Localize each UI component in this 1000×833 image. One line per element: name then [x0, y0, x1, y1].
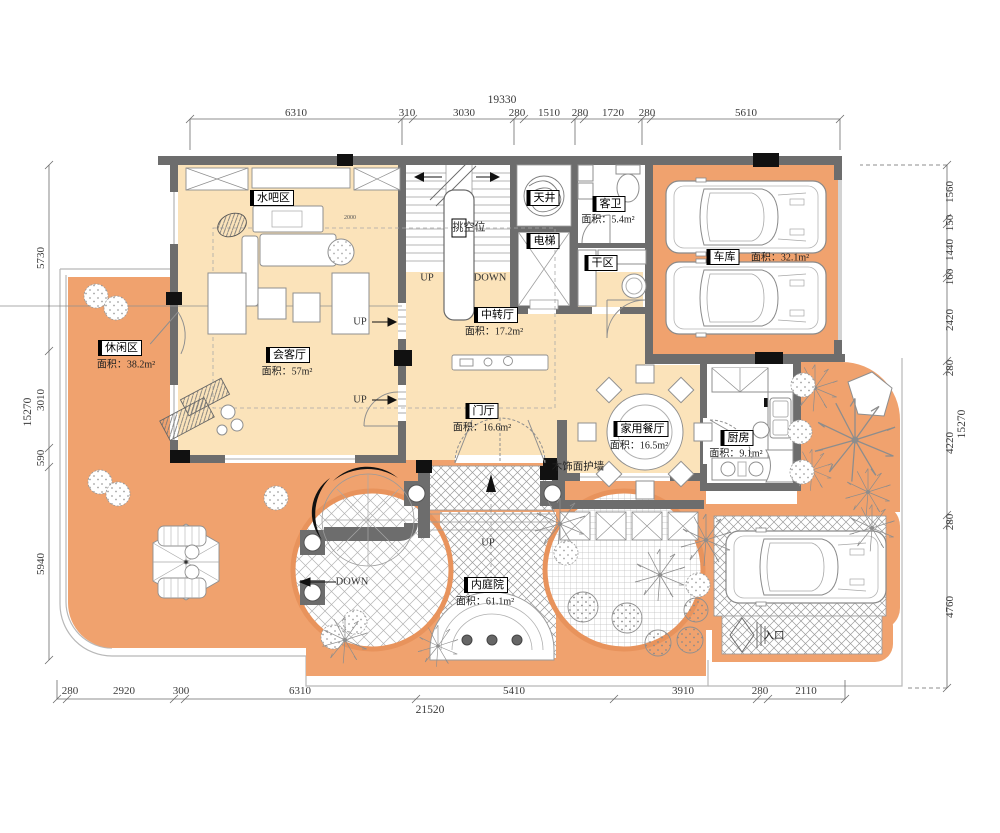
room-label-dry-area: 干区: [585, 253, 618, 271]
room-label-courtyard: 内庭院: [464, 575, 508, 593]
step-up-label-1: UP: [353, 317, 366, 328]
room-label-leisure: 休闲区: [98, 338, 142, 356]
room-label-elevator: 电梯: [527, 231, 560, 249]
room-label-dining: 家用餐厅: [614, 419, 669, 437]
stair-up-label: UP: [420, 273, 433, 284]
floor-plan: 19330 6310 310 3030 280 1510 280 1720 28…: [0, 0, 1000, 833]
kitchen-fixtures: [712, 368, 793, 482]
dim-total-left: 15270: [22, 398, 34, 427]
stair-down-label: DOWN: [474, 273, 507, 284]
room-label-void: 挑空位: [452, 219, 467, 238]
dim-total-right: 15270: [956, 410, 968, 439]
step-up-label-2: UP: [353, 395, 366, 406]
dim-total-bottom: 21520: [416, 704, 445, 716]
bar-dim-label: 2000: [344, 215, 356, 221]
room-label-transfer-hall: 中转厅: [474, 305, 518, 323]
dim-total-top: 19330: [488, 94, 517, 106]
porch-up-label: UP: [481, 538, 494, 549]
room-label-water-bar: 水吧区: [250, 188, 294, 206]
floor-plan-drawing: [0, 0, 1000, 833]
room-label-foyer: 门厅: [466, 401, 499, 419]
room-label-guest-bath: 客卫: [593, 194, 626, 212]
entry-corridor: [722, 616, 882, 654]
room-label-garage: 车库: [707, 247, 740, 265]
entrance-label: 入口: [764, 628, 785, 643]
terrace-down-label: DOWN: [336, 577, 369, 588]
wood-wall-note: 木饰面护墙: [552, 459, 605, 474]
hall-console: [452, 355, 548, 370]
room-label-kitchen: 厨房: [721, 428, 754, 446]
room-label-lightwell: 天井: [527, 188, 560, 206]
room-label-reception: 会客厅: [266, 345, 310, 363]
